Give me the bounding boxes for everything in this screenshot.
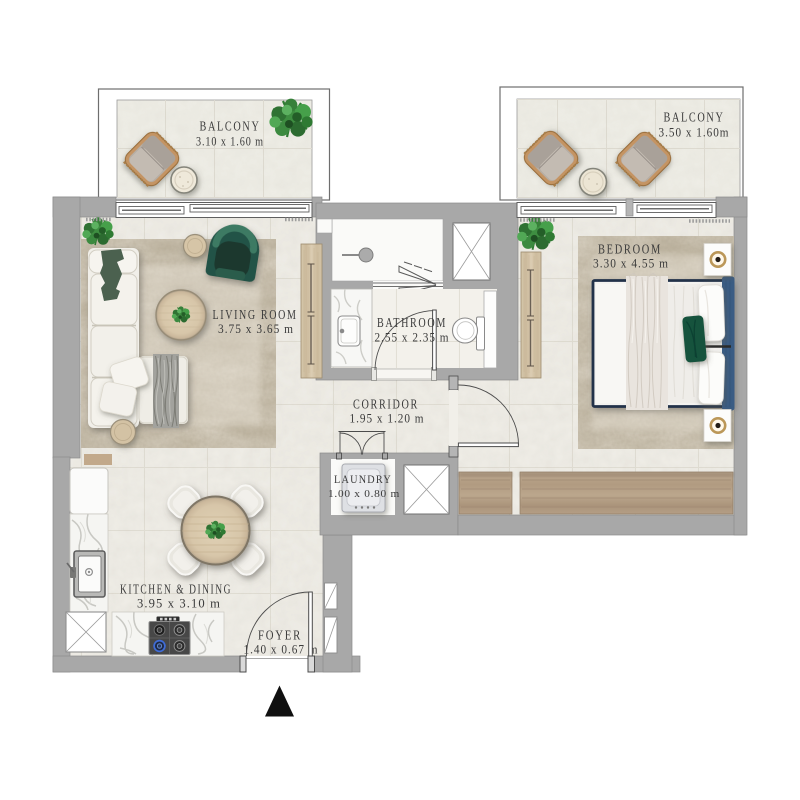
svg-text:FOYER: FOYER (258, 628, 302, 643)
svg-text:BATHROOM: BATHROOM (377, 315, 447, 330)
svg-text:1.00 x 0.80 m: 1.00 x 0.80 m (328, 488, 400, 500)
svg-text:3.75 x 3.65 m: 3.75 x 3.65 m (218, 322, 294, 336)
svg-text:BALCONY: BALCONY (200, 119, 261, 134)
svg-text:3.10 x 1.60 m: 3.10 x 1.60 m (196, 135, 264, 149)
svg-text:LAUNDRY: LAUNDRY (334, 474, 392, 486)
svg-text:3.50 x 1.60m: 3.50 x 1.60m (659, 126, 730, 140)
svg-text:CORRIDOR: CORRIDOR (353, 397, 419, 412)
svg-text:BEDROOM: BEDROOM (598, 242, 662, 257)
svg-text:3.30 x 4.55 m: 3.30 x 4.55 m (593, 257, 669, 271)
svg-text:1.40 x 0.67 m: 1.40 x 0.67 m (244, 643, 319, 657)
svg-text:1.95 x 1.20 m: 1.95 x 1.20 m (350, 412, 425, 426)
svg-text:BALCONY: BALCONY (664, 110, 725, 125)
svg-text:LIVING ROOM: LIVING ROOM (213, 307, 298, 322)
svg-text:3.95 x 3.10 m: 3.95 x 3.10 m (137, 597, 221, 611)
svg-text:2.55 x 2.35 m: 2.55 x 2.35 m (375, 331, 450, 345)
svg-text:KITCHEN & DINING: KITCHEN & DINING (120, 582, 232, 597)
